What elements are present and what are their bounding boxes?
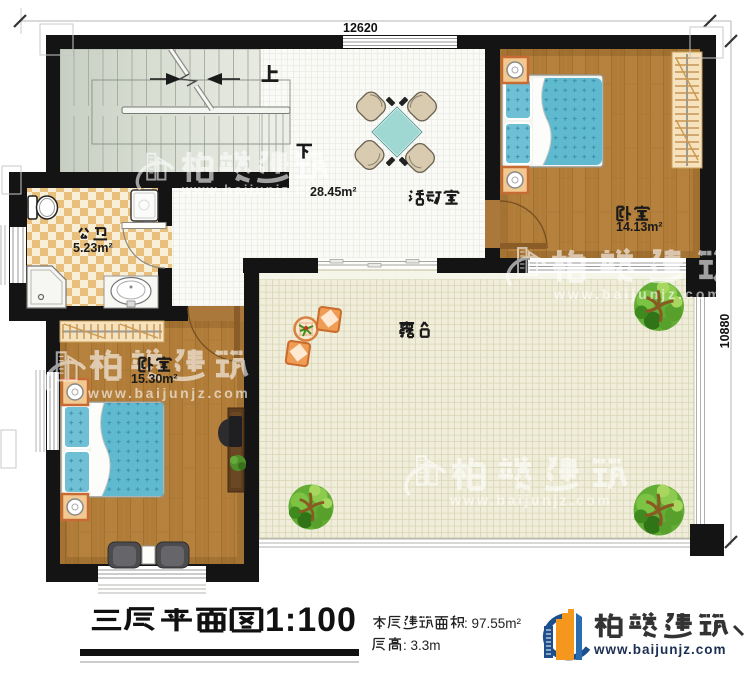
svg-text:12620: 12620: [343, 21, 378, 35]
svg-text:15.30m²: 15.30m²: [131, 372, 178, 386]
svg-text:5.23m²: 5.23m²: [73, 241, 113, 255]
svg-text:10880: 10880: [718, 314, 732, 349]
svg-text:www.baijunjz.com: www.baijunjz.com: [181, 182, 329, 197]
svg-text:www.baijunjz.com: www.baijunjz.com: [593, 642, 727, 657]
svg-text:www.baijunjz.com: www.baijunjz.com: [553, 286, 723, 302]
svg-text:1:100: 1:100: [265, 601, 357, 639]
svg-text:: 97.55m²: : 97.55m²: [464, 616, 522, 631]
svg-text:: 3.3m: : 3.3m: [403, 638, 441, 653]
svg-text:www.baijunjz.com: www.baijunjz.com: [87, 385, 250, 401]
svg-text:28.45m²: 28.45m²: [310, 185, 357, 199]
svg-text:14.13m²: 14.13m²: [616, 220, 663, 234]
svg-text:www.baijunjz.com: www.baijunjz.com: [449, 492, 612, 508]
